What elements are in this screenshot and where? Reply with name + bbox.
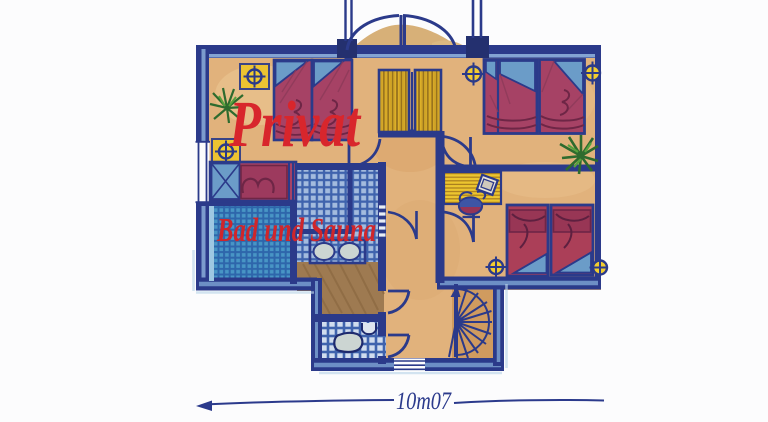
svg-text:10m07: 10m07 [396,388,452,415]
svg-text:Bad und Sauna: Bad und Sauna [216,212,376,249]
svg-text:Privat: Privat [228,88,361,161]
